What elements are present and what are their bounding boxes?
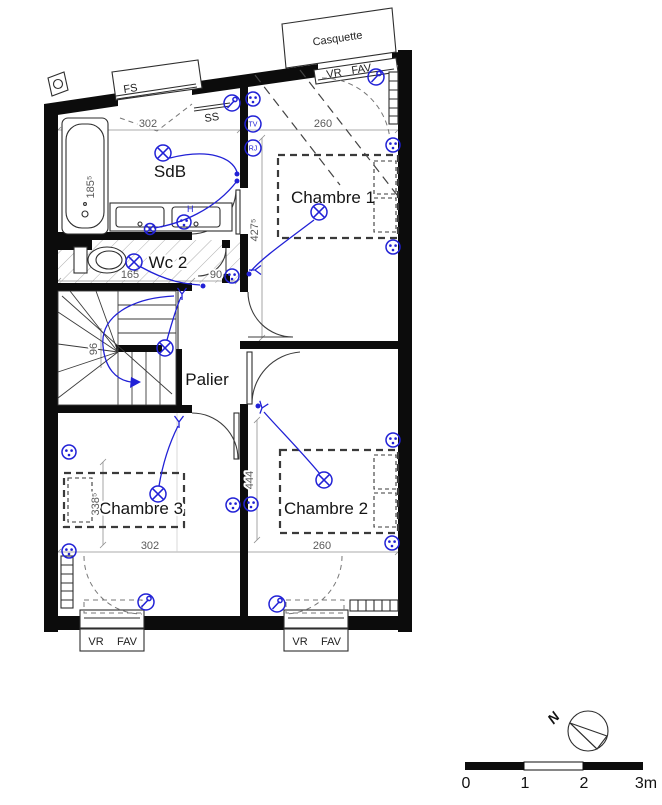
dim-sdb-width: 302	[139, 118, 157, 130]
ceiling-light-icon-sdb	[155, 145, 171, 161]
dim-bath-length: 185⁵	[85, 176, 97, 199]
wire	[264, 412, 320, 474]
window-bl-fav-label: FAV	[117, 636, 138, 648]
north-compass: N	[544, 708, 608, 751]
scale-tick-3m: 3m	[635, 775, 657, 792]
fs-label: FS	[123, 82, 139, 96]
dim-passage: 90	[210, 269, 222, 281]
window-bottom-left: VR FAV	[80, 556, 144, 651]
room-label-sdb: SdB	[154, 162, 186, 181]
svg-text:RJ: RJ	[249, 146, 258, 153]
dim-chambre3-width: 302	[141, 540, 159, 552]
window-bottom-right: VR FAV	[284, 556, 348, 651]
switch-fork-icon	[175, 416, 184, 428]
toilet	[74, 247, 126, 273]
room-label-chambre1: Chambre 1	[291, 188, 375, 207]
dim-chambre1-depth: 427⁵	[249, 219, 261, 242]
washbasin	[110, 203, 232, 231]
dim-stair-width: 96	[88, 343, 100, 355]
chimney-vent	[48, 72, 68, 96]
socket-icon	[386, 138, 400, 152]
wire	[167, 297, 181, 340]
roof-slope-lines	[255, 70, 397, 195]
socket-icon	[385, 536, 399, 550]
dim-chambre2-depth: 444	[244, 471, 256, 489]
socket-icon	[386, 240, 400, 254]
radiator-chambre1	[389, 72, 398, 124]
socket-icon	[386, 433, 400, 447]
socket-icon	[246, 92, 260, 106]
radiator-chambre2	[350, 600, 398, 611]
wire	[159, 426, 178, 486]
room-label-chambre3: Chambre 3	[99, 499, 183, 518]
switch-icon	[138, 594, 154, 610]
floor-plan-drawing: FS SS Casquette VR FAV VR FAV VR FAV	[0, 0, 662, 800]
scale-tick-1: 1	[521, 775, 530, 792]
dim-chambre1-width: 260	[314, 118, 332, 130]
arrowhead	[130, 377, 141, 388]
window-br-fav-label: FAV	[321, 636, 342, 648]
window-br-vr-label: VR	[292, 636, 307, 648]
svg-text:TV: TV	[249, 122, 258, 129]
dim-chambre2-width: 260	[313, 540, 331, 552]
radiator-chambre3	[61, 556, 73, 608]
dim-wc2-width: 165	[121, 269, 139, 281]
ceiling-light-icon-chambre2	[316, 472, 332, 488]
room-label-chambre2: Chambre 2	[284, 499, 368, 518]
dimension-labels: 302 260 185⁵ 427⁵ 165 90 96 338⁵ 444 302…	[85, 118, 332, 552]
high-socket-label: H	[187, 204, 194, 214]
room-label-palier: Palier	[185, 370, 229, 389]
room-label-wc2: Wc 2	[149, 253, 188, 272]
ss-label: SS	[204, 111, 220, 125]
switch-icon	[269, 596, 285, 612]
socket-icon	[226, 498, 240, 512]
scale-tick-2: 2	[580, 775, 589, 792]
bed-chambre2	[280, 450, 398, 533]
window-bl-vr-label: VR	[88, 636, 103, 648]
floor-plan-page: FS SS Casquette VR FAV VR FAV VR FAV	[0, 0, 662, 800]
scale-bar: 0 1 2 3m	[462, 762, 658, 792]
north-label: N	[544, 708, 563, 727]
scale-tick-0: 0	[462, 775, 471, 792]
socket-icon	[62, 445, 76, 459]
electrical-layer: H TV RJ	[62, 69, 400, 612]
dim-chambre3-depth: 338⁵	[90, 493, 102, 516]
